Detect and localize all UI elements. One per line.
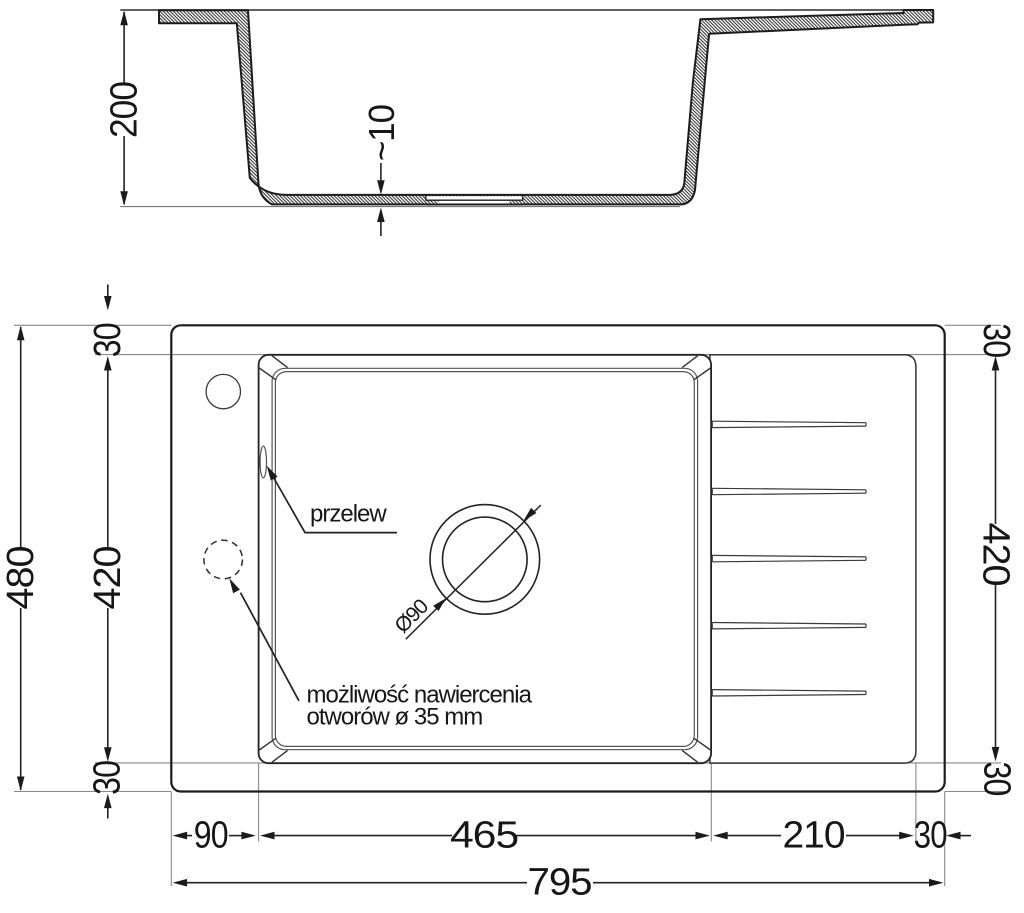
svg-text:30: 30 (87, 323, 129, 357)
svg-text:30: 30 (975, 323, 1017, 357)
svg-text:795: 795 (528, 862, 592, 904)
svg-text:30: 30 (914, 815, 947, 857)
svg-text:480: 480 (0, 547, 42, 610)
svg-text:465: 465 (450, 815, 518, 857)
svg-text:200: 200 (103, 82, 145, 138)
svg-text:30: 30 (976, 762, 1018, 796)
svg-text:otworów ø 35 mm: otworów ø 35 mm (307, 704, 483, 731)
svg-text:420: 420 (975, 523, 1017, 586)
svg-text:przelew: przelew (310, 501, 387, 528)
svg-text:30: 30 (87, 761, 129, 795)
svg-text:420: 420 (87, 547, 129, 610)
svg-text:210: 210 (783, 815, 845, 857)
svg-text:~10: ~10 (361, 105, 402, 161)
svg-text:90: 90 (194, 815, 228, 857)
